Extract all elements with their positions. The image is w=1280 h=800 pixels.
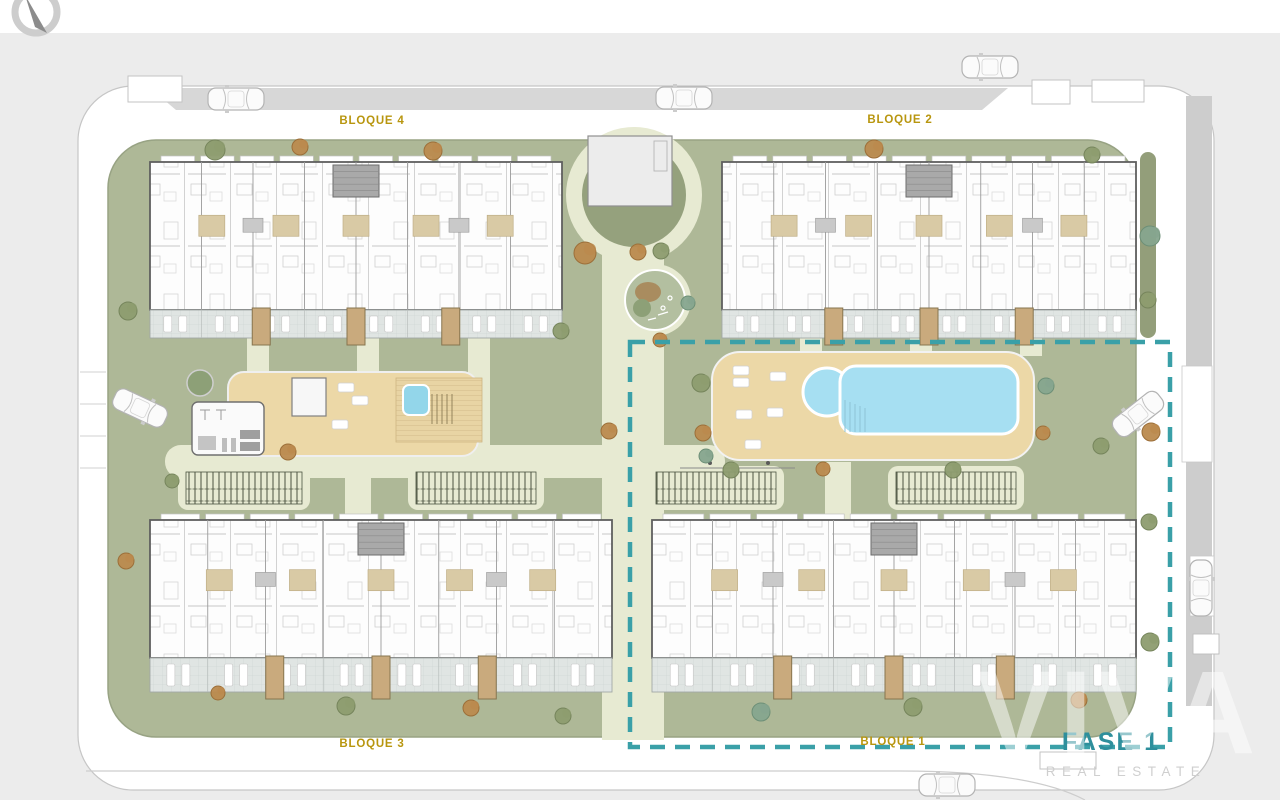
tree-canopy-highlight [1045, 379, 1054, 388]
top-sidewalk [150, 88, 1008, 110]
label-bloque2: BLOQUE 2 [867, 114, 932, 126]
building-bloque2-floorplan [722, 156, 1136, 345]
utility-building [582, 136, 686, 247]
tree-canopy-highlight [560, 324, 569, 333]
swimming-pool [840, 366, 1018, 434]
gym [192, 402, 264, 455]
tree-canopy-highlight [1147, 293, 1156, 302]
car-icon [962, 53, 1018, 81]
top-margin [0, 0, 1280, 33]
car-icon [919, 771, 975, 799]
brand-tagline: REAL ESTATE [1046, 764, 1207, 779]
tree-canopy-highlight [760, 704, 770, 714]
pool-house [292, 378, 326, 416]
tree-canopy-highlight [562, 709, 571, 718]
car-icon [208, 85, 264, 113]
tree-canopy-highlight [705, 450, 713, 458]
building-bloque4-floorplan [150, 156, 562, 345]
tree-canopy-highlight [584, 243, 596, 255]
tree-canopy-highlight [1091, 148, 1100, 157]
site-plan: BLOQUE 4 BLOQUE 2 BLOQUE 3 BLOQUE 1 FASE… [0, 0, 1280, 800]
building-bloque3-floorplan [150, 514, 612, 699]
label-bloque3: BLOQUE 3 [339, 738, 404, 750]
tree-canopy-highlight [702, 426, 711, 435]
tree-canopy-highlight [952, 463, 961, 472]
car-icon [656, 84, 712, 112]
tree-canopy-highlight [1150, 424, 1160, 434]
tree-canopy-highlight [687, 297, 695, 305]
tree-canopy-highlight [345, 698, 355, 708]
tree-canopy-highlight [1100, 439, 1109, 448]
tree-canopy-highlight [299, 140, 308, 149]
tree-canopy-highlight [432, 143, 442, 153]
tree-canopy-highlight [287, 445, 296, 454]
tree-canopy-highlight [125, 554, 134, 563]
tree-canopy-highlight [912, 699, 922, 709]
tree-canopy-highlight [127, 303, 137, 313]
tree-canopy-highlight [1148, 515, 1157, 524]
jacuzzi [403, 385, 429, 415]
tree-canopy-highlight [470, 701, 479, 710]
playground [625, 270, 685, 330]
tree-canopy-highlight [214, 141, 225, 152]
tree-canopy-highlight [1149, 227, 1160, 238]
tree-canopy-highlight [730, 463, 739, 472]
tree-canopy-highlight [171, 475, 179, 483]
label-bloque1: BLOQUE 1 [860, 736, 925, 748]
tree-canopy-highlight [822, 463, 830, 471]
tree-canopy-highlight [608, 424, 617, 433]
car-icon [1187, 560, 1215, 616]
tree-canopy-highlight [637, 245, 646, 254]
tree-canopy-highlight [217, 687, 225, 695]
tree-canopy-highlight [1042, 427, 1050, 435]
tree-canopy-highlight [1149, 634, 1159, 644]
pool-area [712, 352, 1034, 460]
tree-canopy-highlight [660, 244, 669, 253]
round-planter [187, 370, 213, 396]
brand-watermark: VIVA [977, 647, 1260, 779]
label-bloque4: BLOQUE 4 [339, 115, 404, 127]
tree-canopy-highlight [700, 375, 710, 385]
tree-canopy-highlight [873, 141, 883, 151]
